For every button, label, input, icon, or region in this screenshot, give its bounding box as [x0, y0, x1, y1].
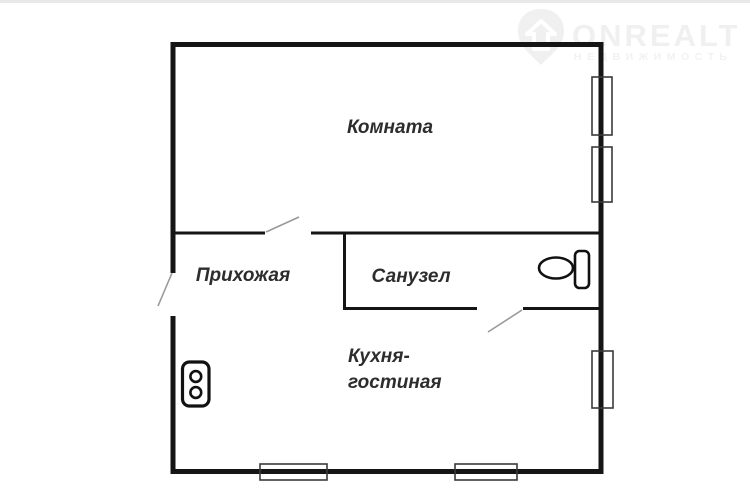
- door-leaf-entrance: [158, 273, 172, 306]
- door-leaf-room: [266, 217, 299, 232]
- floor-plan-screenshot: ONREALT НЕДВИЖИМОСТЬ: [0, 0, 750, 488]
- toilet-bowl: [539, 258, 573, 279]
- outlet-body: [183, 362, 210, 406]
- outer-walls: [171, 42, 604, 474]
- power-outlet-icon: [183, 362, 210, 406]
- floor-plan-drawing: [0, 0, 750, 488]
- room-label-prihozhaya: Прихожая: [196, 265, 290, 287]
- outlet-socket-bottom: [190, 387, 201, 398]
- toilet-icon: [539, 251, 589, 288]
- room-label-kitchen-line2: гостиная: [348, 370, 442, 396]
- room-label-komnata: Комната: [347, 117, 433, 139]
- toilet-tank: [575, 251, 589, 288]
- room-label-kitchen-line1: Кухня-: [348, 344, 442, 370]
- room-label-sanuzel: Санузел: [371, 266, 450, 288]
- outlet-socket-top: [190, 371, 201, 382]
- door-leaf-kitchen: [488, 310, 522, 332]
- room-label-kitchen-living: Кухня- гостиная: [348, 344, 442, 396]
